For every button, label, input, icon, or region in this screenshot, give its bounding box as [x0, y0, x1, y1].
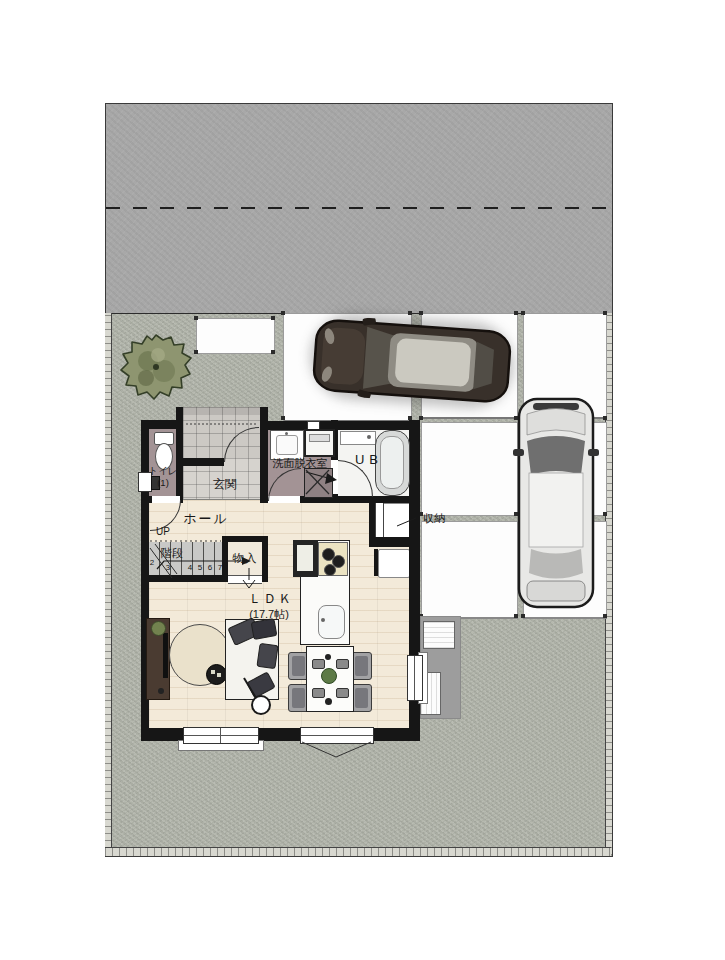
wall	[176, 407, 183, 503]
storage-door	[375, 503, 384, 537]
label-storage: 収納	[423, 511, 445, 526]
stove-burner	[324, 564, 336, 576]
label-closet: 物入	[233, 551, 258, 566]
wall	[222, 542, 228, 578]
kitchen-sink	[318, 605, 345, 639]
wall	[374, 549, 378, 576]
entrance-step-line	[183, 499, 260, 500]
wall	[369, 503, 375, 537]
label-bathroom: UB	[355, 452, 383, 467]
refrigerator	[378, 549, 410, 578]
label-toilet-number: (1)	[157, 477, 169, 488]
dining-chair	[351, 684, 372, 712]
bath-counter	[340, 431, 376, 445]
label-hall: ホール	[183, 510, 229, 528]
label-ldk: ＬＤＫ	[249, 590, 294, 608]
carport-post	[603, 614, 607, 618]
plate	[312, 659, 325, 669]
wall-entrance-front	[183, 458, 224, 466]
stair-number: 7	[218, 563, 222, 572]
stair-number: 5	[198, 563, 202, 572]
window-east	[407, 655, 423, 701]
plate	[336, 688, 349, 698]
closet-sliding-door	[228, 575, 262, 584]
wall	[268, 421, 420, 430]
dining-chair	[351, 652, 372, 680]
stair-number: 3	[166, 563, 170, 572]
fence-left	[105, 313, 112, 855]
stair-number: 2	[150, 558, 154, 567]
carport-post	[521, 311, 525, 315]
fence-bottom	[105, 847, 611, 856]
plate	[312, 688, 325, 698]
stair-number: 4	[188, 563, 192, 572]
storage-closet	[382, 503, 411, 539]
parking-slab	[421, 422, 518, 516]
road-centerline	[106, 207, 610, 209]
carport-post	[514, 311, 518, 315]
washer-pan	[304, 468, 333, 498]
silver-car	[513, 397, 599, 609]
carport-post	[603, 512, 607, 516]
carport-post	[194, 316, 198, 320]
carport-post	[408, 311, 412, 315]
plant	[151, 621, 166, 636]
carport-post	[271, 316, 275, 320]
carport-post	[603, 416, 607, 420]
window-south-1	[183, 727, 259, 744]
table-plant	[321, 668, 337, 684]
kitchen-cabinet	[293, 540, 318, 577]
carport-post	[271, 350, 275, 354]
tv	[163, 633, 168, 678]
table-item	[325, 698, 332, 705]
side-table	[206, 664, 227, 685]
approach-slab	[196, 318, 275, 354]
carport-post	[521, 614, 525, 618]
floor-plan-canvas: トイレ (1) 玄関 洗面脱衣室 UB ホール UP 階段 2 3 4 5 6 …	[0, 0, 725, 960]
stair-number: 6	[208, 563, 212, 572]
wall	[262, 536, 268, 578]
wall	[260, 407, 268, 503]
carport-post	[194, 350, 198, 354]
label-up: UP	[156, 526, 170, 537]
carport-post	[419, 311, 423, 315]
label-ldk-area: (17.7帖)	[249, 607, 289, 622]
dark-car	[310, 314, 513, 408]
parking-slab	[421, 521, 518, 619]
carport-post	[514, 614, 518, 618]
label-washroom: 洗面脱衣室	[273, 456, 328, 471]
plate	[336, 659, 349, 669]
carport-post	[281, 416, 285, 420]
ac-outdoor-unit	[423, 621, 455, 649]
carport-post	[281, 311, 285, 315]
sofa-cushion	[256, 643, 278, 669]
carport-post	[603, 311, 607, 315]
floor-lamp	[251, 695, 271, 715]
window-south-2	[300, 727, 374, 744]
wall	[369, 537, 420, 547]
washing-machine	[304, 429, 335, 457]
knob	[158, 688, 164, 694]
road	[105, 103, 613, 315]
label-entrance: 玄関	[213, 476, 237, 493]
label-stairs: 階段	[161, 546, 183, 561]
tree	[118, 331, 194, 403]
table-item	[325, 654, 331, 660]
